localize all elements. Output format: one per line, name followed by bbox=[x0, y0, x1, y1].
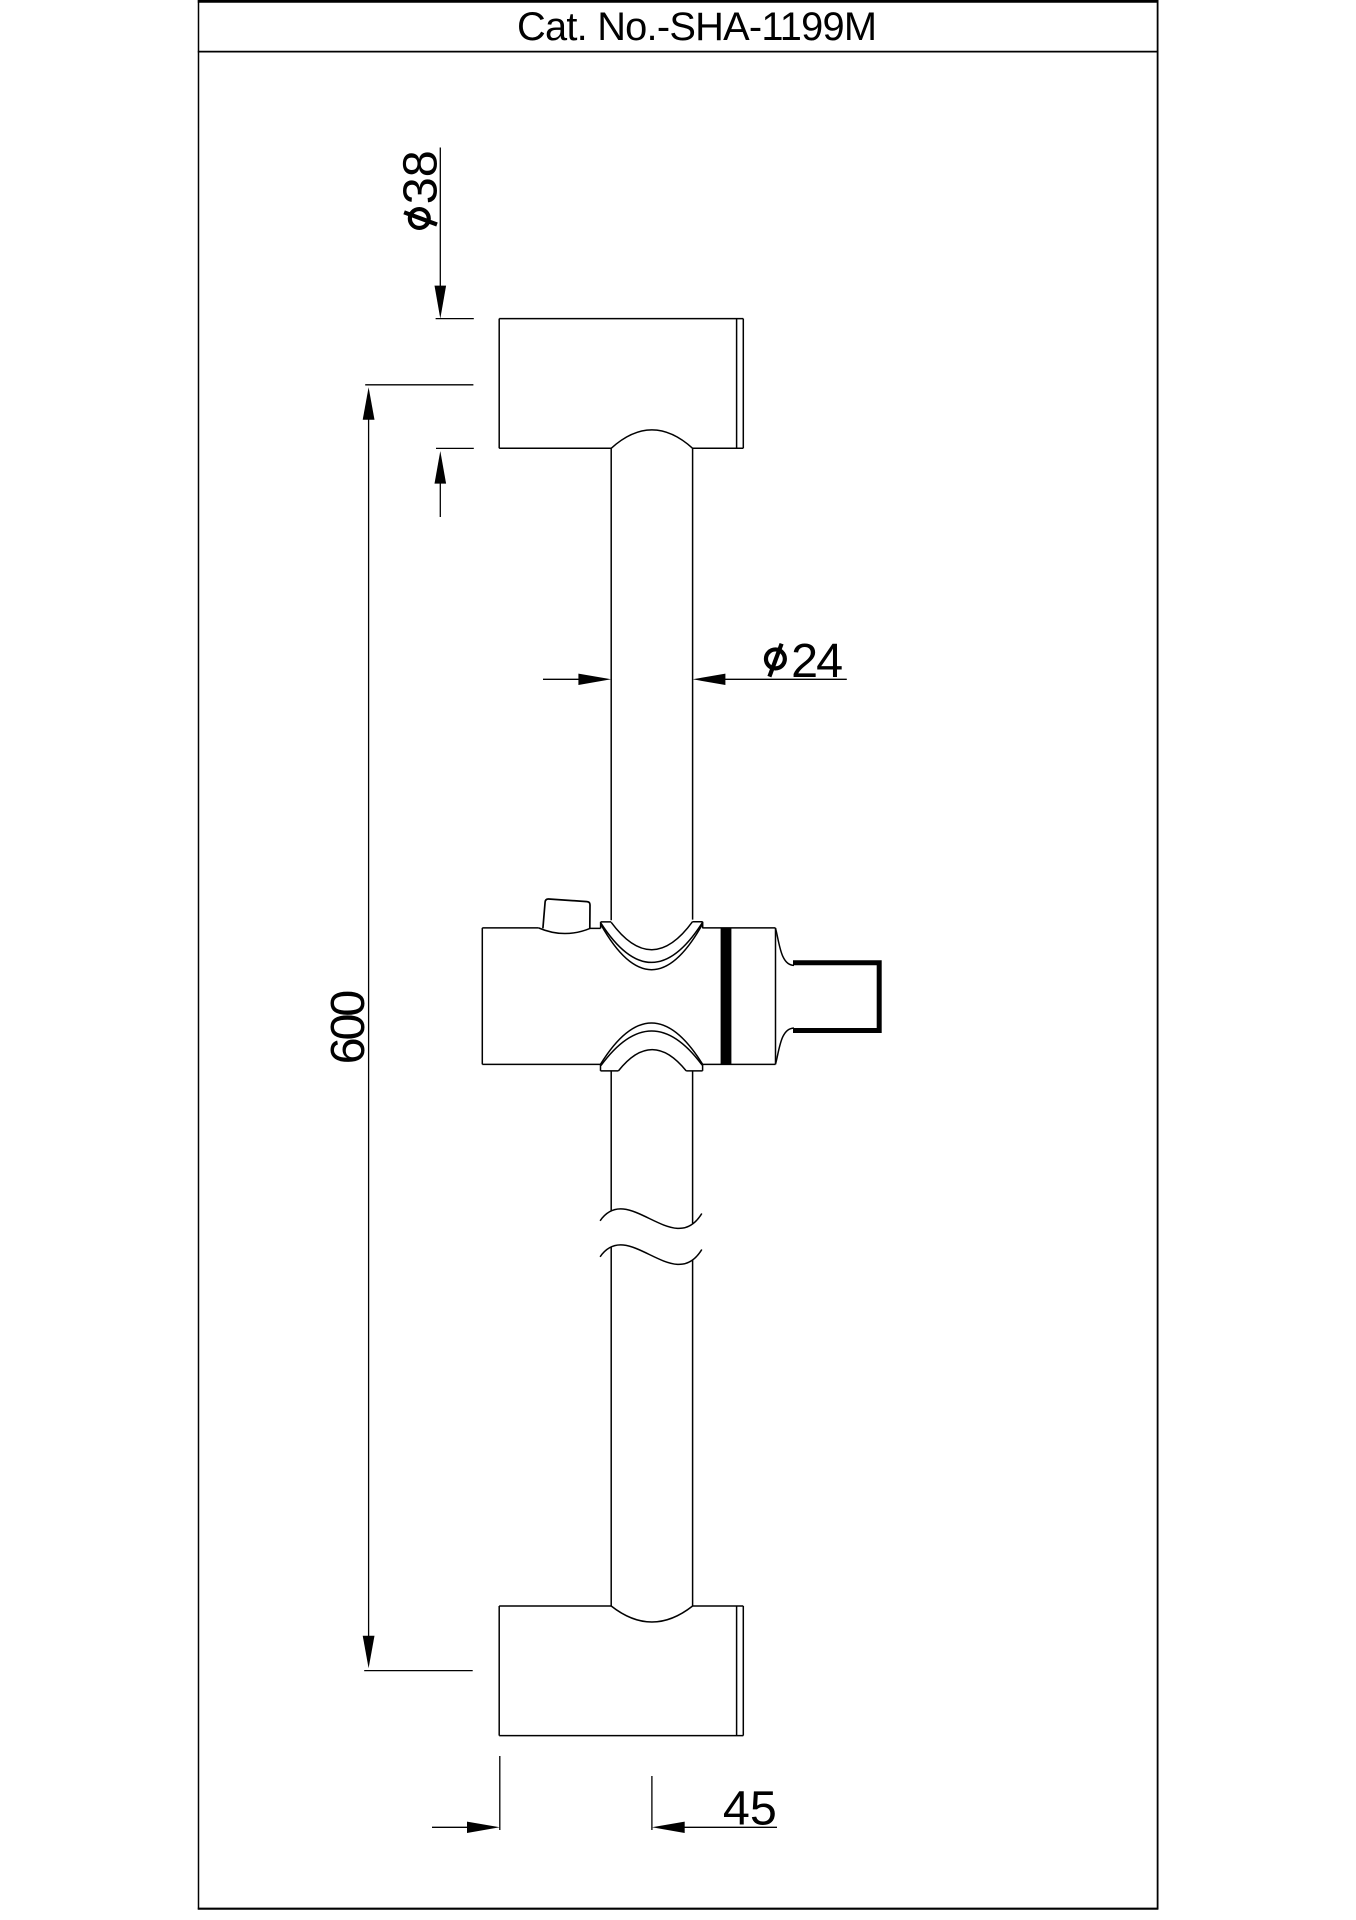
svg-text:38: 38 bbox=[394, 150, 448, 204]
svg-text:Cat. No.-SHA-1199M: Cat. No.-SHA-1199M bbox=[517, 5, 877, 49]
svg-text:600: 600 bbox=[321, 990, 375, 1065]
svg-text:24: 24 bbox=[791, 634, 843, 688]
svg-text:45: 45 bbox=[723, 1781, 777, 1835]
